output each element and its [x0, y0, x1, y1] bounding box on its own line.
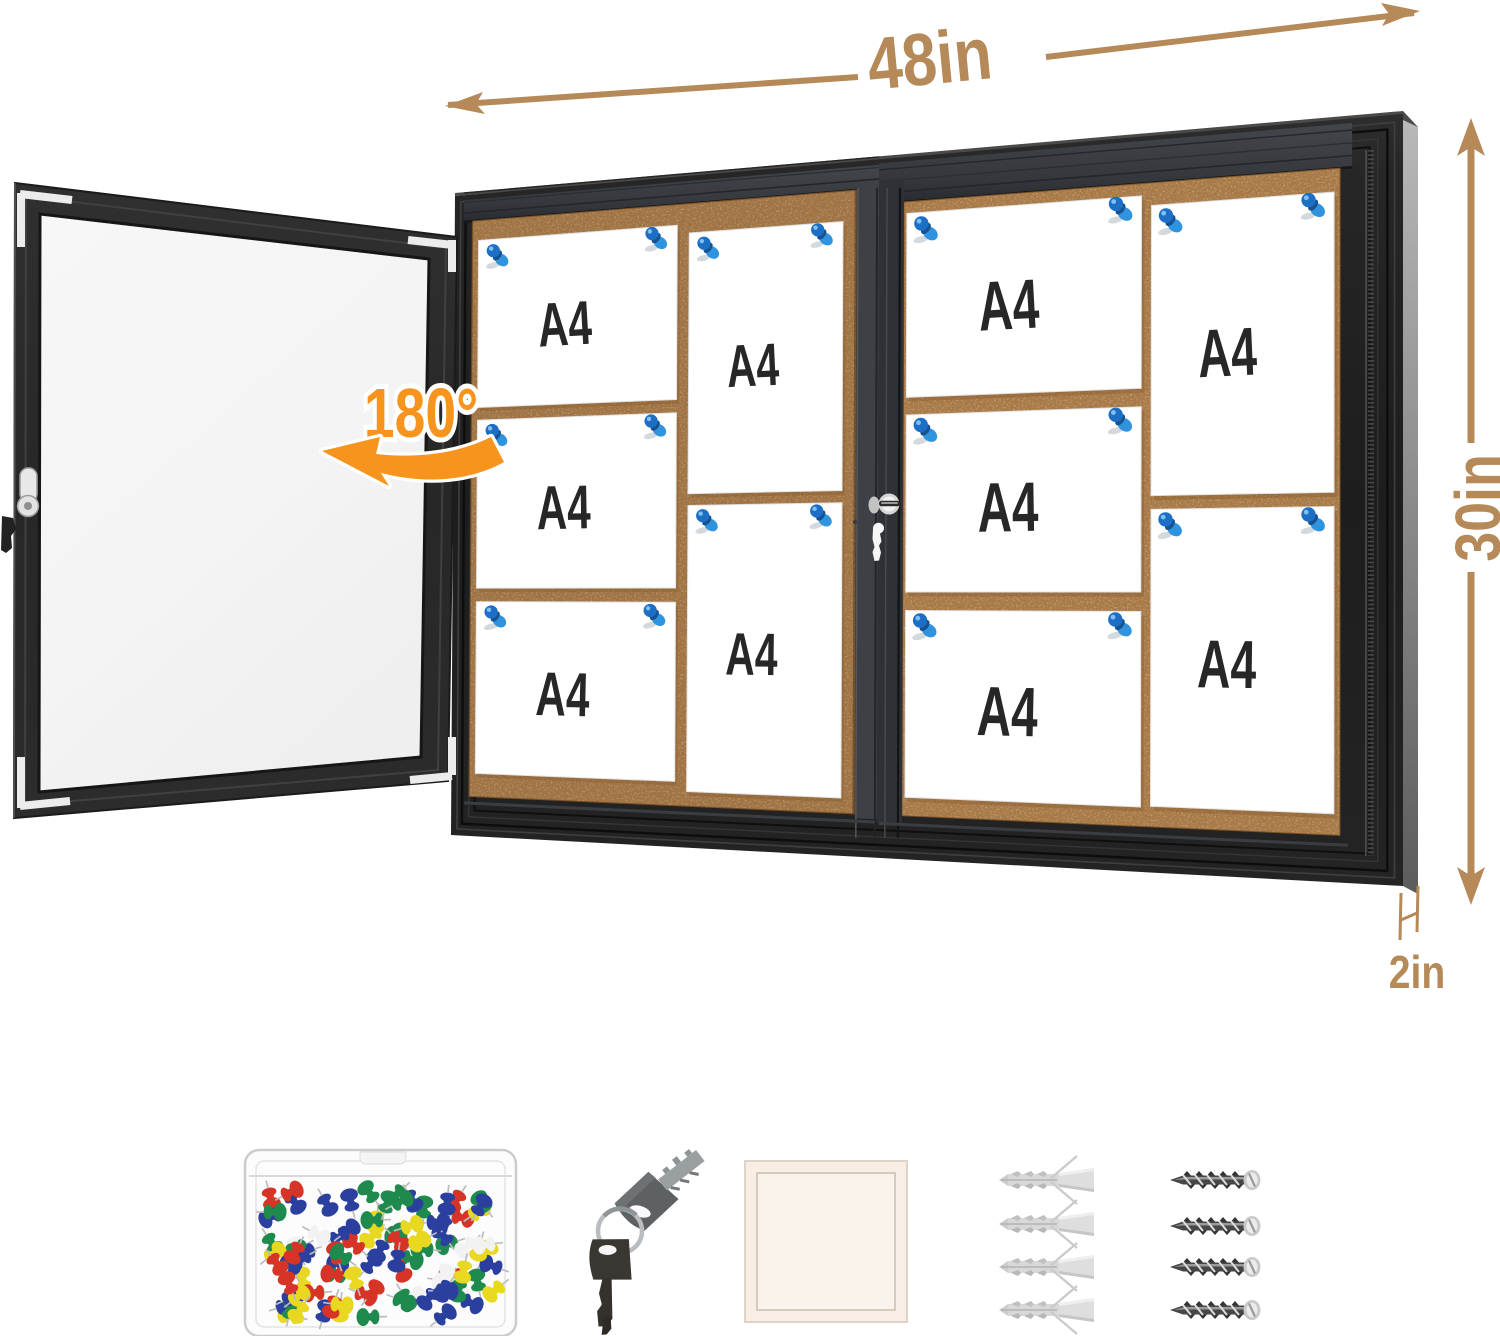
svg-text:2in: 2in	[1389, 947, 1445, 999]
svg-text:30in: 30in	[1442, 454, 1500, 562]
svg-text:A4: A4	[536, 473, 591, 543]
svg-text:A4: A4	[535, 660, 591, 730]
svg-text:A4: A4	[976, 672, 1039, 752]
svg-text:A4: A4	[725, 331, 781, 400]
svg-text:A4: A4	[725, 621, 778, 688]
svg-text:A4: A4	[1197, 626, 1258, 703]
svg-text:A4: A4	[977, 468, 1039, 547]
svg-text:A4: A4	[1196, 314, 1259, 393]
svg-text:A4: A4	[536, 289, 594, 361]
svg-text:A4: A4	[976, 264, 1041, 346]
svg-text:48in: 48in	[864, 12, 996, 106]
